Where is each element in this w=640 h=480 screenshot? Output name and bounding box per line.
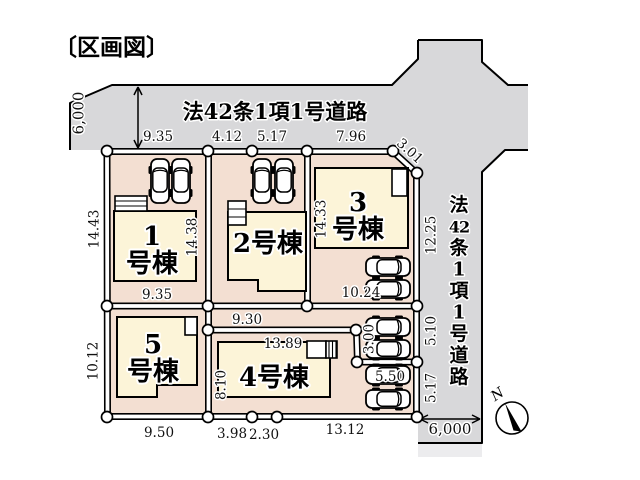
dimension-label: 13.12 (326, 422, 365, 438)
porch-icon (307, 341, 337, 358)
dimension-label: 9.50 (144, 425, 174, 441)
dimension-label: 9.35 (142, 287, 172, 303)
vertex-marker (102, 146, 113, 157)
road-label-right-char: 42 (449, 218, 469, 237)
car-icon (170, 159, 193, 203)
vertex-marker (102, 301, 113, 312)
dimension-label: 2.30 (249, 427, 279, 443)
dimension-label: 14.38 (185, 218, 201, 257)
vertex-marker (412, 301, 423, 312)
road-label-right-char: 項 (449, 280, 469, 302)
plot-map-page: N 〔区画図〕 法42条1項1号道路 法42条1項1号道路 1号棟2号棟3号棟4… (0, 0, 640, 480)
entry-steps-icon (228, 201, 246, 225)
vertex-marker (272, 412, 283, 423)
vertex-marker (203, 146, 214, 157)
vertex-marker (102, 412, 113, 423)
dimension-label: 9.35 (143, 129, 173, 145)
road-label-right-char: 路 (449, 365, 469, 388)
vertex-marker (203, 412, 214, 423)
lot-name-label: 4号棟 (239, 363, 310, 393)
road-label-right-char: 道 (449, 344, 468, 367)
car-icon (366, 256, 410, 279)
dimension-label: 10.24 (342, 285, 381, 301)
porch-icon (185, 317, 197, 335)
dimension-label: 14.43 (87, 210, 103, 249)
compass-icon: N (487, 384, 528, 434)
vertex-marker (352, 357, 363, 368)
road-label-right: 法42条1項1号道路 (449, 193, 470, 388)
dimension-label: 8.10 (214, 370, 230, 400)
lot-name-label: 2号棟 (233, 229, 304, 259)
vertex-marker (247, 412, 258, 423)
road-label-right-char: 1 (452, 302, 465, 324)
vertex-marker (203, 325, 214, 336)
vertex-marker (302, 146, 313, 157)
vertex-marker (412, 168, 423, 179)
dimension-label: 4.12 (212, 129, 242, 145)
page-title: 〔区画図〕 (54, 34, 169, 61)
dimension-label: 3.98 (217, 426, 247, 442)
dimension-label: 6,000 (429, 420, 472, 438)
vertex-marker (247, 146, 258, 157)
road-label-right-char: 法 (449, 193, 468, 216)
compass-north-label: N (487, 384, 508, 405)
road-label-right-char: 1 (452, 259, 465, 281)
car-icon (366, 388, 410, 411)
dimension-label: 14.33 (314, 200, 330, 239)
vertex-marker (412, 357, 423, 368)
dimension-label: 12.25 (424, 216, 440, 255)
plot-map: N 〔区画図〕 法42条1項1号道路 法42条1項1号道路 1号棟2号棟3号棟4… (0, 0, 640, 480)
vertex-marker (351, 325, 362, 336)
dimension-label: 10.12 (86, 342, 102, 381)
dimension-label: 5.10 (424, 316, 440, 346)
road-label-right-char: 条 (449, 236, 469, 259)
dimension-label: 5.50 (375, 369, 405, 385)
road-label-right-char: 号 (449, 323, 468, 345)
dimension-label: 5.17 (257, 129, 287, 145)
road-label-top: 法42条1項1号道路 (183, 99, 368, 124)
car-icon (251, 159, 274, 203)
dimension-label: 7.96 (336, 129, 366, 145)
road-fade (418, 443, 482, 457)
dimension-label: 5.17 (424, 373, 440, 403)
dimension-label: 3.00 (362, 324, 378, 354)
vertex-marker (412, 412, 423, 423)
dimension-label: 13.89 (264, 336, 303, 352)
dimension-label: 9.30 (232, 312, 262, 328)
entry-steps-icon (115, 196, 147, 211)
vertex-marker (203, 301, 214, 312)
porch-icon (392, 169, 407, 196)
car-icon (273, 159, 296, 203)
vertex-marker (302, 301, 313, 312)
dimension-label: 6,000 (70, 92, 88, 135)
car-icon (149, 159, 172, 203)
